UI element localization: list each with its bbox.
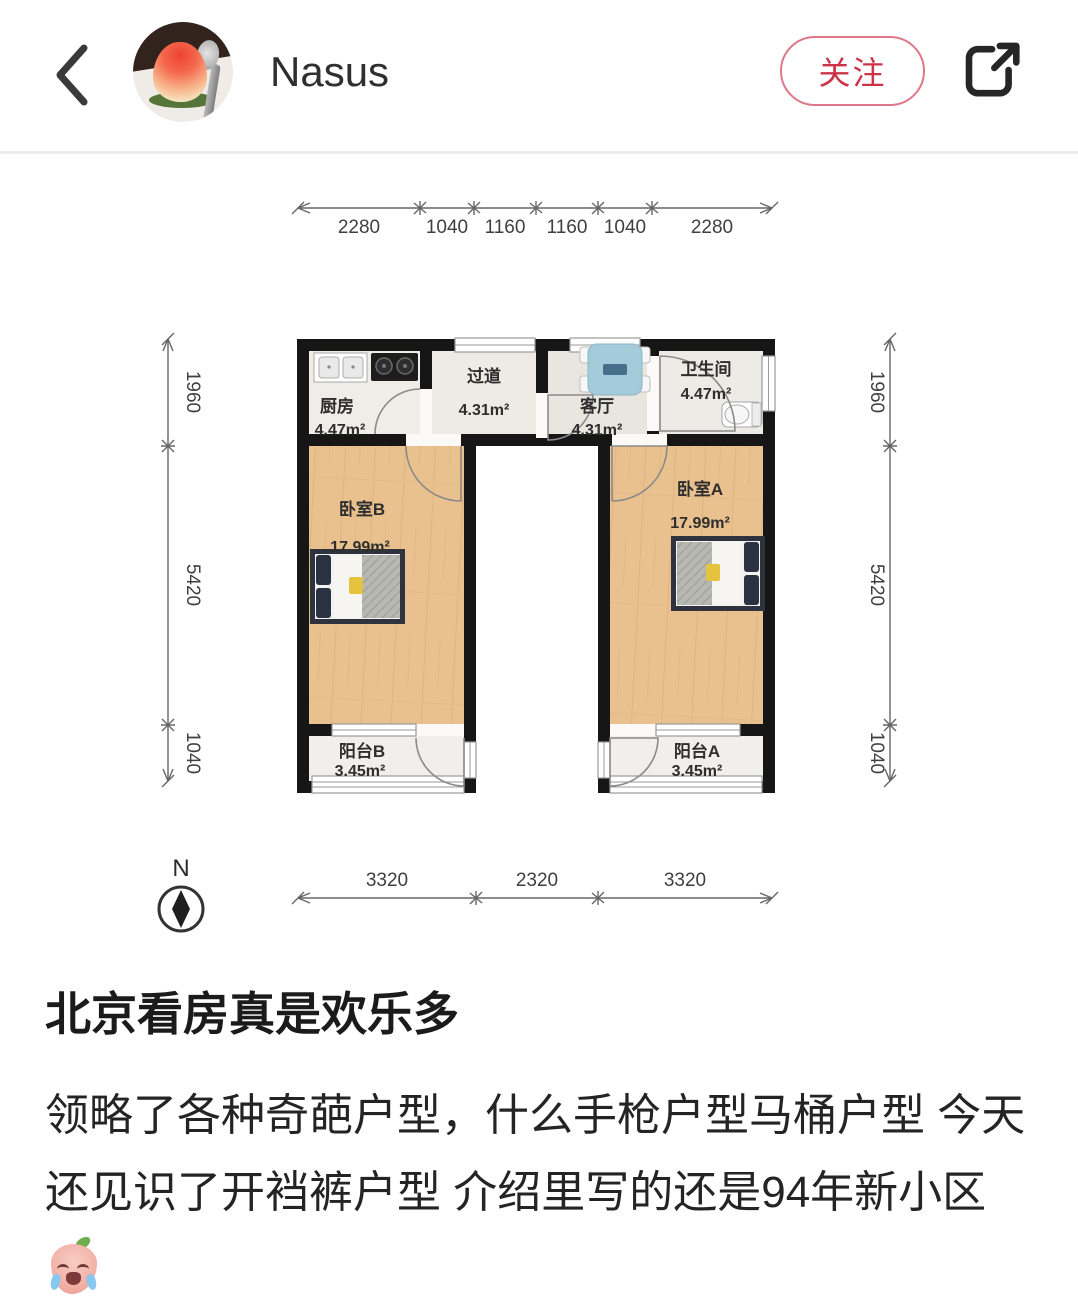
username[interactable]: Nasus: [270, 50, 389, 94]
bedroomA-balcony-window: [656, 724, 740, 736]
balconyA-area: 3.45m²: [672, 763, 723, 780]
bathroom-name: 卫生间: [681, 359, 732, 379]
svg-text:1160: 1160: [547, 217, 588, 238]
hallway-floor: [432, 351, 536, 434]
bedB: [310, 549, 405, 624]
svg-text:1960: 1960: [866, 371, 887, 413]
avatar-peach: [153, 42, 207, 102]
balconyA-name: 阳台A: [674, 741, 720, 761]
kitchen-stove: [371, 353, 418, 381]
living-area: 4.31m²: [572, 422, 623, 439]
dimension-top: 2280 1040 1160 1160 1040 2280: [292, 201, 778, 238]
svg-text:1160: 1160: [485, 217, 526, 238]
follow-button[interactable]: 关注: [780, 36, 925, 106]
svg-text:1040: 1040: [182, 732, 203, 774]
post-body-text: 领略了各种奇葩户型，什么手枪户型马桶户型 今天还见识了开裆裤户型 介绍里写的还是…: [45, 1091, 1025, 1217]
balconyB-floor: [309, 736, 464, 781]
post-body: 领略了各种奇葩户型，什么手枪户型马桶户型 今天还见识了开裆裤户型 介绍里写的还是…: [45, 1077, 1035, 1308]
share-icon: [958, 36, 1024, 102]
back-button[interactable]: [50, 42, 94, 108]
bedroomA-area: 17.99m²: [670, 515, 730, 532]
balconyA-side-window: [598, 742, 610, 778]
svg-text:5420: 5420: [182, 564, 203, 606]
balconyB-area: 3.45m²: [335, 763, 386, 780]
bedroomB-area: 17.99m²: [330, 539, 390, 556]
share-button[interactable]: [958, 36, 1024, 102]
svg-text:2280: 2280: [338, 217, 380, 238]
post-title: 北京看房真是欢乐多: [45, 985, 1035, 1043]
dimension-right: 1960 5420 1040: [866, 333, 897, 787]
bathroom-area: 4.47m²: [681, 386, 732, 403]
svg-text:N: N: [172, 855, 189, 882]
follow-button-label: 关注: [818, 48, 886, 94]
hallway-name: 过道: [467, 366, 501, 386]
svg-text:1960: 1960: [182, 371, 203, 413]
svg-text:1040: 1040: [426, 217, 468, 238]
crying-emoji: [49, 1238, 101, 1294]
balconyB-side-window: [464, 742, 476, 778]
bedroomA-name: 卧室A: [677, 479, 723, 499]
bedA: [671, 536, 765, 611]
central-void: [476, 446, 598, 793]
svg-text:3320: 3320: [366, 870, 408, 891]
bedroomB-name: 卧室B: [339, 499, 385, 519]
kitchen-area: 4.47m²: [315, 422, 366, 439]
svg-text:5420: 5420: [866, 564, 887, 606]
bedroomB-balcony-window: [332, 724, 416, 736]
living-name: 客厅: [579, 396, 614, 416]
hallway-area: 4.31m²: [459, 402, 510, 419]
bathroom-window: [762, 356, 775, 411]
avatar[interactable]: [133, 22, 233, 122]
back-chevron-icon: [50, 42, 94, 108]
svg-text:2280: 2280: [691, 217, 733, 238]
svg-text:1040: 1040: [604, 217, 646, 238]
balconyB-name: 阳台B: [339, 741, 385, 761]
svg-text:1040: 1040: [866, 732, 887, 774]
post-image[interactable]: 厨房 4.47m² 过道 4.31m² 客厅 4.31m² 卫生间 4.47m²…: [0, 154, 1078, 960]
header-bar: Nasus 关注: [0, 0, 1078, 151]
svg-text:2320: 2320: [516, 870, 558, 891]
compass-icon: N: [159, 855, 203, 931]
floorplan-drawing: 厨房 4.47m² 过道 4.31m² 客厅 4.31m² 卫生间 4.47m²…: [0, 154, 1078, 960]
post-detail-page: Nasus 关注: [0, 0, 1078, 1310]
dining-table: [580, 344, 650, 395]
hallway-window: [455, 338, 535, 352]
post-text-section: 北京看房真是欢乐多 领略了各种奇葩户型，什么手枪户型马桶户型 今天还见识了开裆裤…: [45, 985, 1035, 1308]
kitchen-name: 厨房: [320, 396, 354, 416]
dimension-bottom: 3320 2320 3320: [292, 870, 778, 905]
dimension-left: 1960 5420 1040: [161, 333, 203, 787]
kitchen-sink: [314, 353, 367, 382]
svg-text:3320: 3320: [664, 870, 706, 891]
toilet: [722, 402, 762, 427]
